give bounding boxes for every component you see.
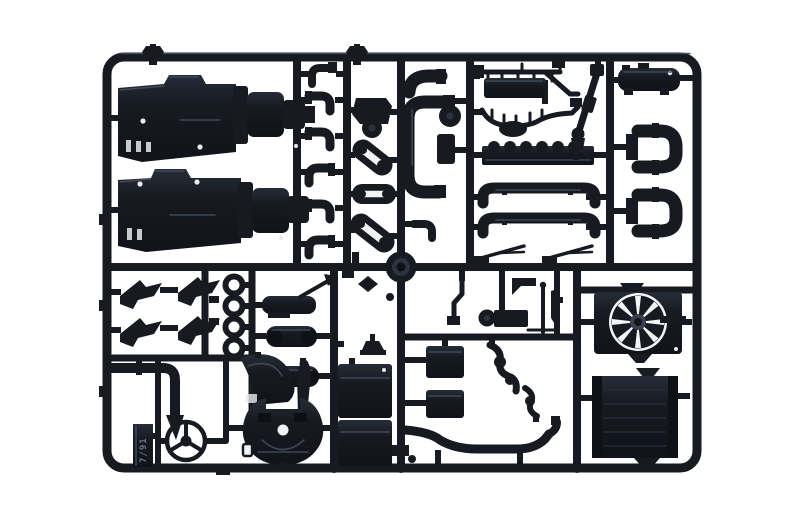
belt-pulley-part <box>359 146 387 170</box>
equipment-box-2-part <box>405 390 464 418</box>
belt-pulley-part <box>357 220 389 247</box>
injector-rail-part <box>470 58 578 104</box>
sprue-clip-left <box>142 44 164 65</box>
fender-panel-part <box>240 352 295 405</box>
long-tube-lower-part <box>470 213 610 233</box>
belt-pulley-part <box>358 190 390 198</box>
sprue-photo: 7/91 <box>0 0 800 530</box>
air-dryer-part <box>252 274 336 318</box>
slim-pillar-part <box>551 288 563 326</box>
pulley-and-belt-parts <box>347 98 401 247</box>
finned-cylinder-block-part <box>470 141 610 165</box>
equipment-box-1-part <box>405 337 464 378</box>
spring-bracket <box>120 280 162 309</box>
bracket-with-pulley-part <box>479 271 537 327</box>
steering-wheel-part <box>158 422 226 460</box>
long-exhaust-pipe-part <box>392 416 560 469</box>
mold-code-tab: 7/91 <box>133 424 158 467</box>
sealing-rings <box>209 277 252 357</box>
elbow-fittings-column <box>297 62 347 255</box>
elbow-fitting <box>297 127 347 147</box>
fan-with-shroud-part <box>577 283 692 363</box>
air-tank-1-part <box>252 326 334 347</box>
exhaust-elbow-pair-lower-part <box>610 187 676 239</box>
spring-bracket <box>120 318 162 347</box>
radiator-part <box>577 368 690 468</box>
elbow-fitting <box>297 163 347 183</box>
engine-block-half-lower-part <box>118 169 309 252</box>
z-rod-part <box>447 271 462 325</box>
long-tube-upper-part <box>470 183 610 203</box>
fifth-wheel-coupling-part <box>226 398 334 469</box>
water-pump-part <box>352 98 392 138</box>
valve-cover-part <box>610 63 693 95</box>
battery-box-1-part <box>338 358 392 418</box>
wiring-loom-manifold-part <box>470 98 582 137</box>
s-bend-hose-2-part <box>525 388 537 422</box>
sprue-drawing: 7/91 <box>0 0 800 530</box>
large-loop-pipe-part <box>401 69 470 238</box>
elbow-fitting <box>297 235 347 255</box>
engine-mount-part <box>334 334 386 355</box>
battery-box-2-part <box>338 420 392 466</box>
center-sprue-hub <box>386 252 417 283</box>
exhaust-elbow-pair-upper-part <box>610 123 676 175</box>
s-bend-hose-1-part <box>490 337 516 391</box>
mold-code-text: 7/91 <box>139 437 149 463</box>
